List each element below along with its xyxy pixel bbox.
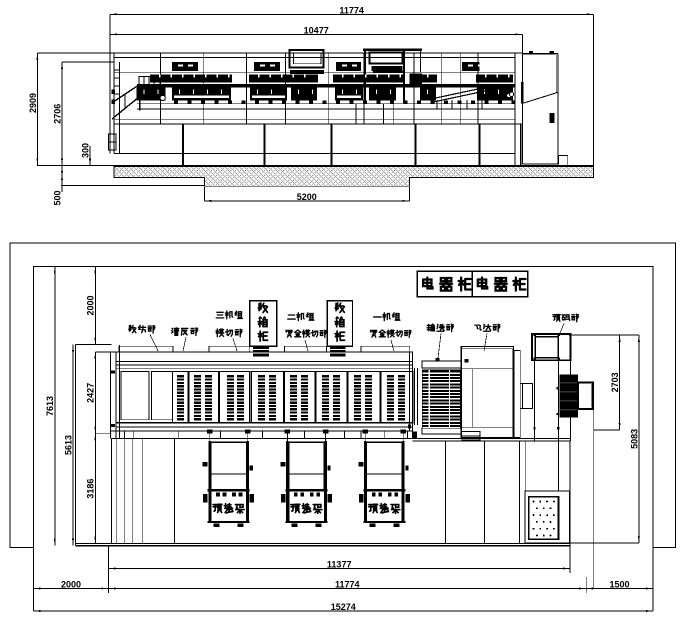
svg-text:2427: 2427 <box>86 383 96 403</box>
svg-text:11774: 11774 <box>339 5 364 15</box>
svg-text:5083: 5083 <box>629 429 639 449</box>
svg-text:5200: 5200 <box>297 192 317 202</box>
svg-text:2000: 2000 <box>61 580 81 590</box>
svg-text:2703: 2703 <box>610 372 620 392</box>
svg-text:2000: 2000 <box>86 295 96 315</box>
svg-text:3186: 3186 <box>86 479 96 499</box>
svg-text:2706: 2706 <box>52 104 62 124</box>
svg-text:2909: 2909 <box>28 93 38 113</box>
svg-text:5613: 5613 <box>63 435 73 455</box>
svg-text:11774: 11774 <box>335 580 360 590</box>
svg-text:300: 300 <box>80 143 90 158</box>
svg-text:7613: 7613 <box>45 396 55 416</box>
svg-text:15274: 15274 <box>331 602 356 612</box>
svg-text:11377: 11377 <box>327 560 352 570</box>
svg-text:10477: 10477 <box>304 25 329 35</box>
svg-text:500: 500 <box>52 190 62 205</box>
svg-text:1500: 1500 <box>610 580 630 590</box>
